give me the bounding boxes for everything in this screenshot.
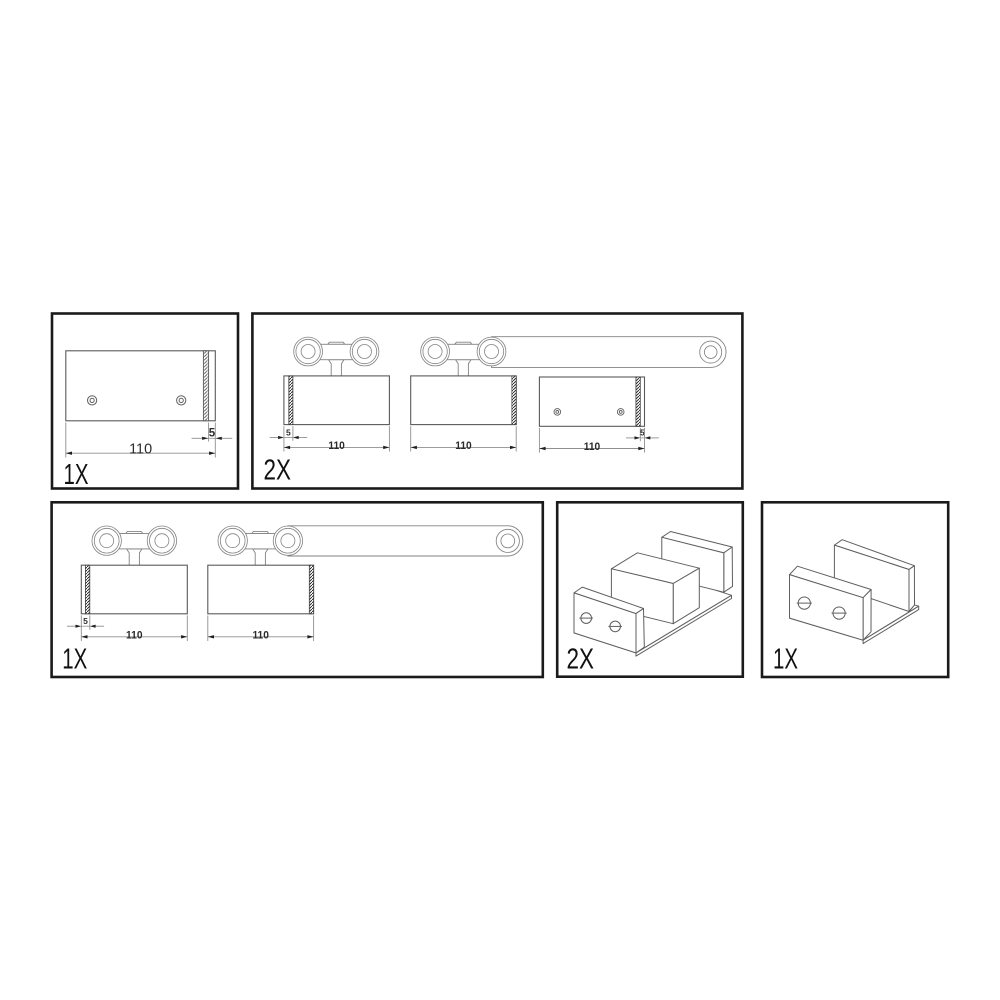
svg-text:5: 5 xyxy=(209,427,216,439)
svg-text:2X: 2X xyxy=(264,455,292,487)
svg-text:5: 5 xyxy=(83,616,88,626)
svg-text:1X: 1X xyxy=(773,644,798,676)
svg-text:1X: 1X xyxy=(64,459,89,491)
svg-text:2X: 2X xyxy=(567,644,595,676)
svg-text:110: 110 xyxy=(252,629,269,641)
svg-text:110: 110 xyxy=(584,441,601,453)
svg-text:110: 110 xyxy=(455,440,472,452)
svg-text:110: 110 xyxy=(129,440,152,457)
svg-text:5: 5 xyxy=(286,427,291,437)
svg-text:110: 110 xyxy=(328,440,345,452)
svg-text:110: 110 xyxy=(126,629,143,641)
svg-text:1X: 1X xyxy=(62,644,87,676)
